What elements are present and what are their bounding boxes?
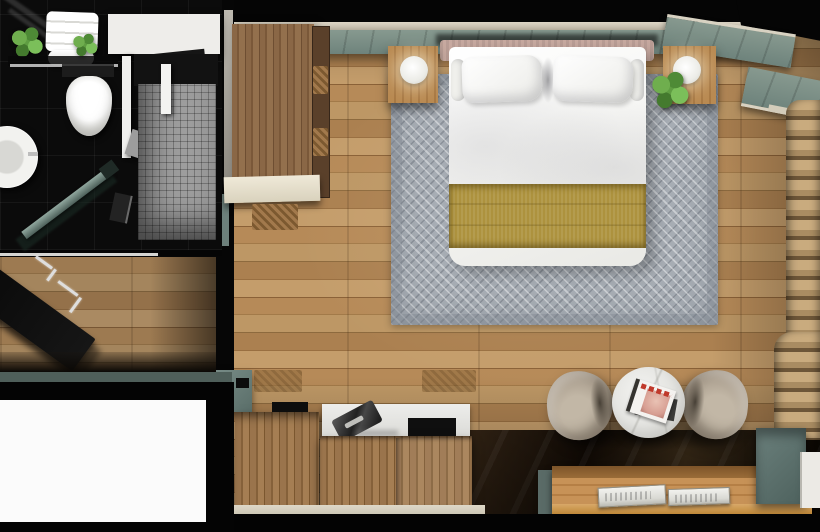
bed-runner (449, 184, 646, 248)
pillow (552, 55, 634, 104)
book-cover-text (605, 491, 652, 501)
woven-basket (252, 204, 298, 230)
floor-inlay-patch (254, 370, 302, 392)
wardrobe-side-shelves (312, 26, 330, 198)
book-cover-text (675, 493, 717, 502)
tv-black-panel (408, 418, 456, 437)
safe-box-slot (236, 378, 249, 388)
curtains-lower (774, 332, 820, 438)
book (598, 484, 667, 508)
television (322, 404, 470, 439)
corridor-baseboard (0, 352, 216, 372)
tv-credenza (320, 436, 472, 507)
corner-counter (800, 452, 820, 508)
pillow (461, 55, 543, 104)
wicker-basket (313, 128, 328, 156)
book (668, 487, 731, 506)
sink-faucet-icon (28, 152, 38, 156)
shower-door-handle (161, 64, 171, 114)
shower-mosaic-floor (138, 84, 216, 240)
slate-side-cabinet (756, 428, 806, 504)
bathroom (0, 0, 222, 250)
cabinet-vent (272, 402, 308, 412)
wicker-basket (313, 66, 328, 94)
bed (449, 47, 646, 266)
corridor-teal-sill (0, 372, 232, 382)
potted-plant (648, 70, 692, 112)
chair-seat-gap (684, 376, 707, 428)
plan-cutout-area (0, 400, 206, 522)
table-lamp-icon (400, 56, 428, 84)
wardrobe (232, 24, 314, 178)
shower-ledge (134, 54, 218, 86)
credenza-raised-section (396, 438, 470, 507)
shelf-plant (70, 33, 100, 58)
sunglasses-graphic (344, 415, 364, 429)
floorplan-render (0, 0, 820, 532)
corridor-threshold (0, 253, 158, 256)
floor-inlay-patch (422, 370, 476, 392)
shelf-plant (8, 26, 46, 60)
luggage-shelf (224, 175, 321, 204)
minibar-cabinet (235, 412, 319, 510)
